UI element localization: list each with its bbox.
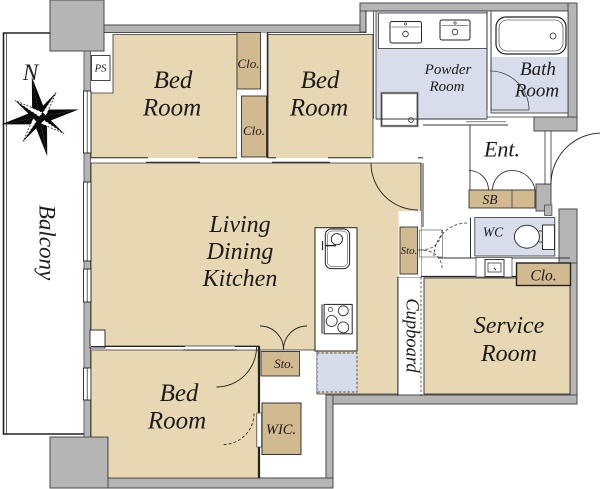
svg-text:Room: Room (429, 79, 465, 95)
svg-text:Bed: Bed (154, 67, 193, 94)
svg-text:N: N (22, 60, 40, 85)
svg-text:SB: SB (483, 192, 498, 207)
svg-text:WIC.: WIC. (266, 422, 296, 438)
svg-text:WC: WC (483, 225, 504, 240)
svg-text:Kitchen: Kitchen (202, 266, 278, 292)
svg-text:Powder: Powder (424, 62, 472, 78)
svg-text:Clo.: Clo. (530, 268, 556, 285)
svg-text:Living: Living (208, 212, 270, 238)
svg-text:Room: Room (514, 81, 559, 102)
svg-text:Room: Room (480, 341, 537, 367)
svg-text:Bed: Bed (160, 380, 199, 407)
svg-text:PS: PS (94, 64, 107, 75)
svg-text:Clo.: Clo. (237, 56, 259, 71)
svg-text:Service: Service (474, 313, 545, 339)
svg-text:Balcony: Balcony (35, 205, 60, 281)
svg-text:Room: Room (142, 95, 201, 122)
svg-text:Bed: Bed (301, 67, 340, 94)
svg-text:Room: Room (147, 408, 206, 435)
svg-text:Sto.: Sto. (401, 245, 418, 257)
svg-text:Sto.: Sto. (274, 356, 294, 371)
svg-text:Bath: Bath (520, 59, 556, 80)
svg-text:Dining: Dining (206, 239, 274, 265)
svg-text:Room: Room (289, 95, 348, 122)
svg-text:Ent.: Ent. (483, 137, 520, 162)
svg-text:Clo.: Clo. (243, 123, 265, 138)
svg-text:Cupboard: Cupboard (402, 298, 422, 373)
